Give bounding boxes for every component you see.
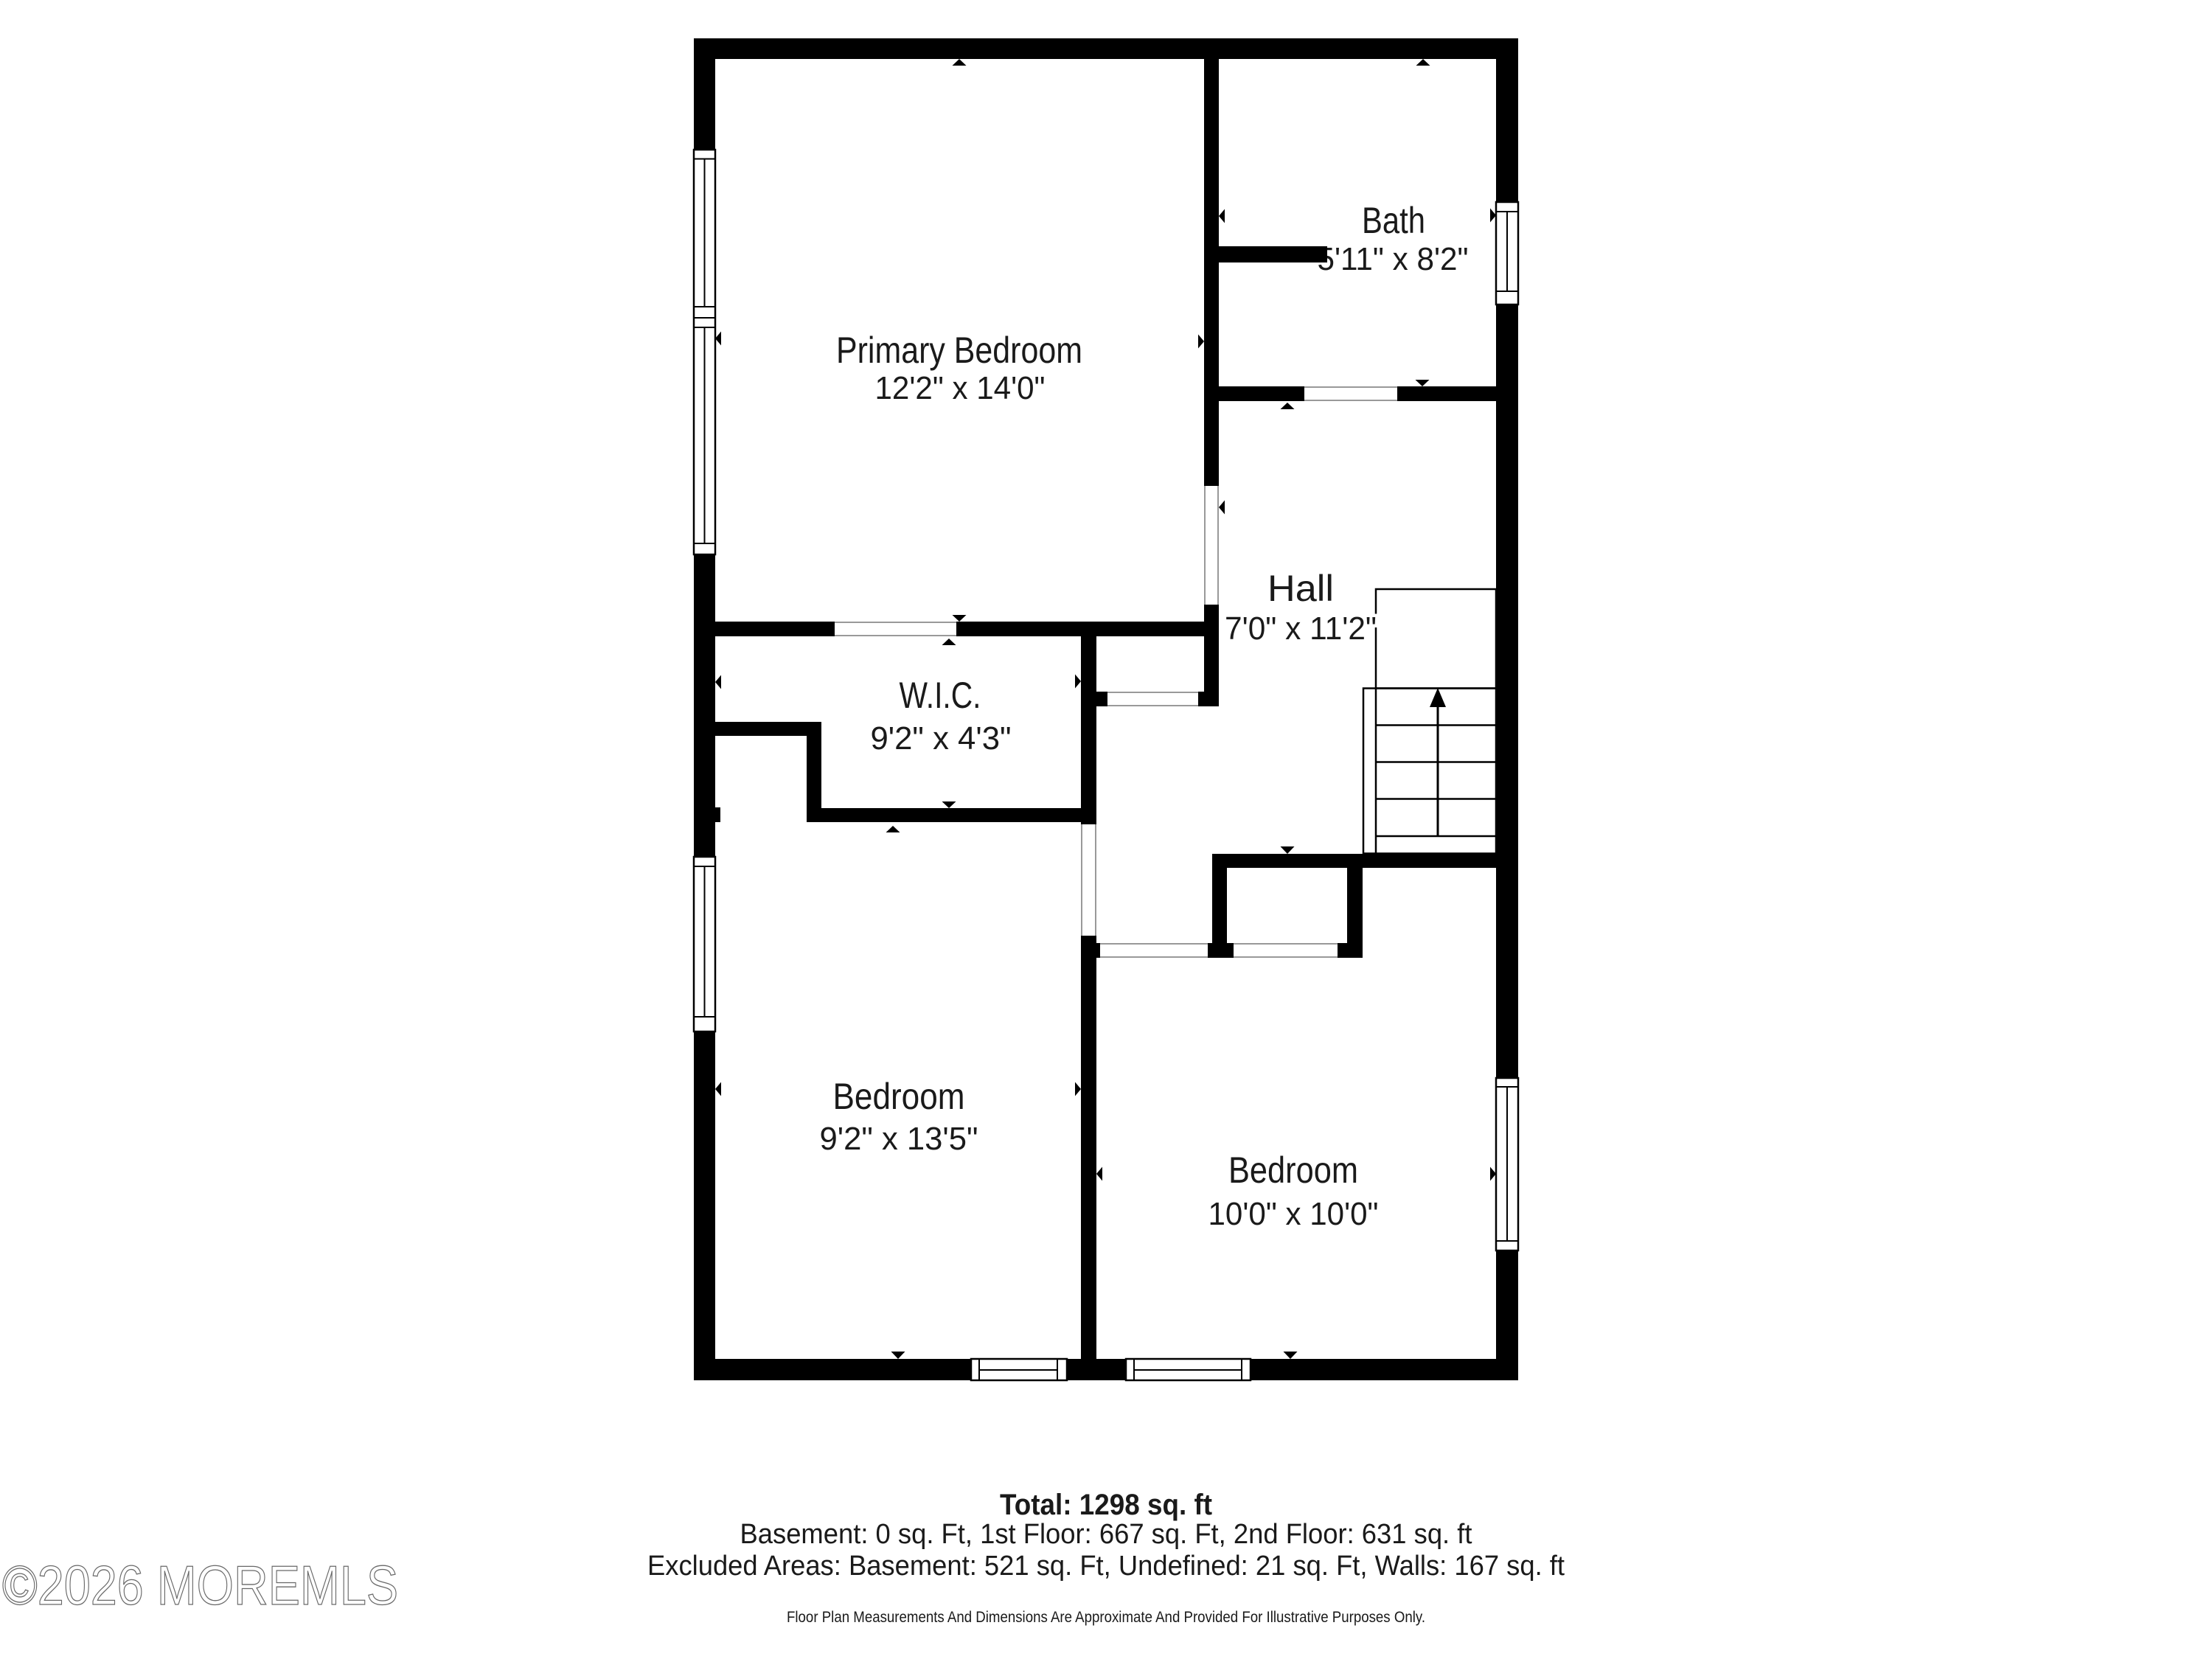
- svg-text:Hall: Hall: [1267, 568, 1334, 609]
- svg-text:Bath: Bath: [1362, 200, 1425, 241]
- svg-text:Bedroom: Bedroom: [833, 1076, 965, 1117]
- svg-text:7'0" x 11'2": 7'0" x 11'2": [1225, 611, 1377, 647]
- svg-text:W.I.C.: W.I.C.: [900, 675, 981, 716]
- svg-text:5'11" x 8'2": 5'11" x 8'2": [1318, 241, 1469, 277]
- svg-text:Floor Plan Measurements And Di: Floor Plan Measurements And Dimensions A…: [787, 1609, 1425, 1626]
- svg-text:Primary Bedroom: Primary Bedroom: [836, 330, 1082, 371]
- svg-text:9'2" x 4'3": 9'2" x 4'3": [871, 720, 1012, 757]
- svg-text:9'2" x 13'5": 9'2" x 13'5": [820, 1121, 978, 1157]
- svg-text:10'0" x 10'0": 10'0" x 10'0": [1208, 1196, 1379, 1232]
- svg-text:Excluded Areas: Basement: 521: Excluded Areas: Basement: 521 sq. Ft, Un…: [647, 1551, 1565, 1582]
- svg-text:Bedroom: Bedroom: [1228, 1150, 1358, 1191]
- svg-text:Total: 1298 sq. ft: Total: 1298 sq. ft: [1000, 1489, 1212, 1521]
- svg-text:©2026 MOREMLS: ©2026 MOREMLS: [2, 1554, 398, 1616]
- svg-text:Basement: 0 sq. Ft, 1st Floor:: Basement: 0 sq. Ft, 1st Floor: 667 sq. F…: [740, 1519, 1472, 1550]
- svg-text:12'2" x 14'0": 12'2" x 14'0": [875, 370, 1046, 406]
